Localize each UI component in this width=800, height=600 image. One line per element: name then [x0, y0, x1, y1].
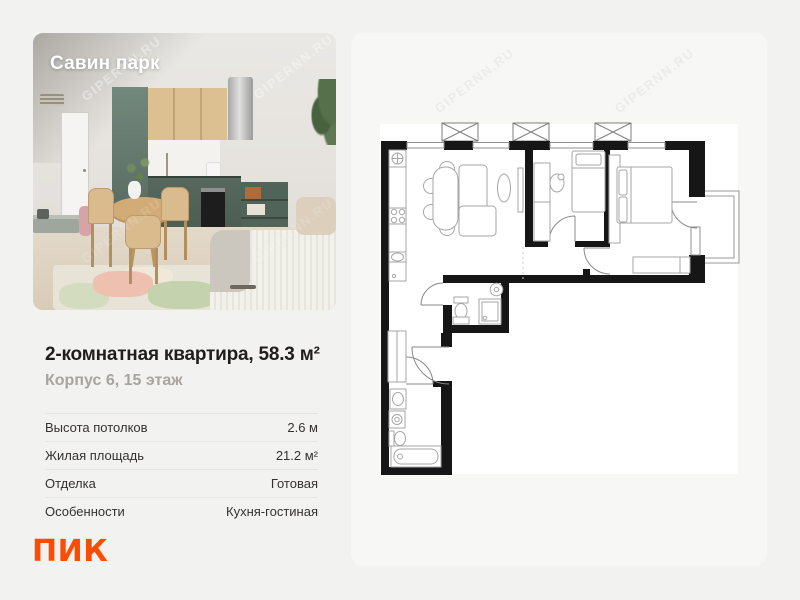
- watermark: GIPERNN.RU: [612, 45, 697, 116]
- detail-value: Кухня-гостиная: [226, 504, 318, 519]
- rug-patch: [93, 271, 153, 297]
- listing-subtitle: Корпус 6, 15 этаж: [45, 372, 183, 390]
- details-table: Высота потолков 2.6 м Жилая площадь 21.2…: [45, 413, 318, 525]
- photo-air-vent: [40, 94, 64, 106]
- photo-books: [247, 204, 265, 215]
- photo-books: [245, 187, 261, 199]
- photo-bed-shadow: [230, 285, 256, 289]
- detail-value: Готовая: [271, 476, 318, 491]
- detail-label: Особенности: [45, 504, 125, 519]
- photo-door-handle: [83, 169, 86, 172]
- detail-row: Жилая площадь 21.2 м²: [45, 441, 318, 469]
- detail-row: Особенности Кухня-гостиная: [45, 497, 318, 525]
- listing-page: { "watermark": { "text": "GIPERNN.RU" },…: [0, 0, 800, 600]
- photo-vase: [128, 181, 141, 199]
- detail-label: Жилая площадь: [45, 448, 144, 463]
- watermark: GIPERNN.RU: [432, 45, 517, 116]
- detail-row: Отделка Готовая: [45, 469, 318, 497]
- rug-patch: [148, 281, 218, 309]
- photo-shelf-line: [241, 199, 288, 201]
- photo-chair: [88, 188, 114, 224]
- photo-oven: [201, 188, 225, 228]
- photo-chair-leg: [91, 223, 94, 267]
- pik-logo: ПИК: [32, 537, 108, 567]
- vent-boxes: [442, 123, 631, 141]
- photo-chair-leg: [164, 220, 167, 260]
- photo-chair-leg: [129, 248, 132, 284]
- photo-bed-pillow: [296, 197, 336, 235]
- photo-chair: [161, 187, 189, 221]
- detail-label: Отделка: [45, 476, 96, 491]
- project-name: Савин парк: [50, 53, 160, 75]
- kitchen-counter: [389, 150, 406, 281]
- photo-upper-cabinets: [148, 88, 227, 140]
- photo-cushion: [37, 209, 49, 219]
- photo-shelf-line: [241, 217, 288, 219]
- detail-row: Высота потолков 2.6 м: [45, 413, 318, 441]
- photo-chair-leg: [109, 223, 112, 267]
- detail-label: Высота потолков: [45, 420, 148, 435]
- photo-chair-leg: [155, 248, 158, 284]
- photo-plant: [309, 79, 336, 145]
- apartment-photo: GIPERNN.RU GIPERNN.RU GIPERNN.RU GIPERNN…: [33, 33, 336, 310]
- floor-plan: [378, 121, 742, 479]
- photo-bed-throw: [210, 230, 250, 292]
- hallway-wardrobe: [388, 331, 406, 382]
- photo-range-hood: [228, 77, 253, 140]
- detail-value: 21.2 м²: [276, 448, 318, 463]
- photo-chair-leg: [184, 220, 187, 260]
- floor-plan-card: GIPERNN.RU GIPERNN.RU GIPERNN.RU GIPERNN…: [351, 33, 767, 566]
- listing-title: 2-комнатная квартира, 58.3 м²: [45, 344, 320, 366]
- tv-stand: [518, 168, 523, 212]
- photo-chair: [125, 215, 161, 249]
- detail-value: 2.6 м: [287, 420, 318, 435]
- photo-sideboard: [33, 219, 79, 233]
